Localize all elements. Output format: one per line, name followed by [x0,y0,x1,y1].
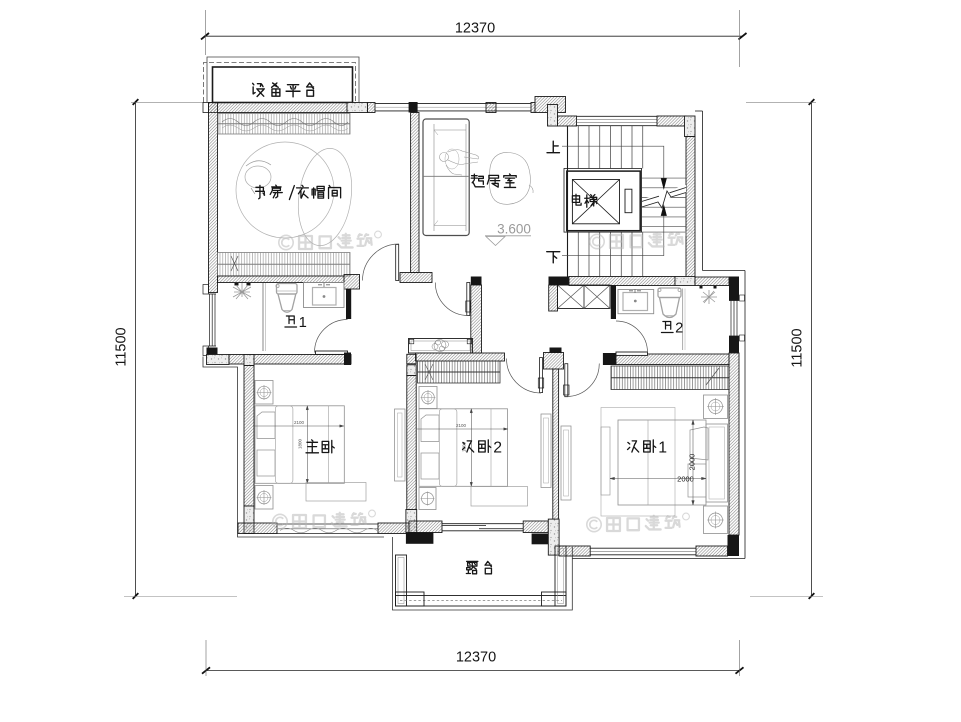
svg-text:2000: 2000 [688,454,697,471]
svg-text:2100: 2100 [456,423,467,428]
svg-text:2100: 2100 [294,420,305,425]
svg-text:12370: 12370 [456,650,496,666]
svg-text:11500: 11500 [790,328,806,367]
svg-text:2: 2 [493,439,502,456]
svg-text:11500: 11500 [114,327,130,366]
svg-text:3.600: 3.600 [497,222,531,237]
svg-text:1: 1 [658,439,667,456]
svg-text:2: 2 [675,320,683,336]
svg-text:2000: 2000 [677,475,694,484]
svg-text:12370: 12370 [455,21,495,37]
svg-text:1: 1 [299,315,307,331]
svg-text:1800: 1800 [297,438,302,449]
